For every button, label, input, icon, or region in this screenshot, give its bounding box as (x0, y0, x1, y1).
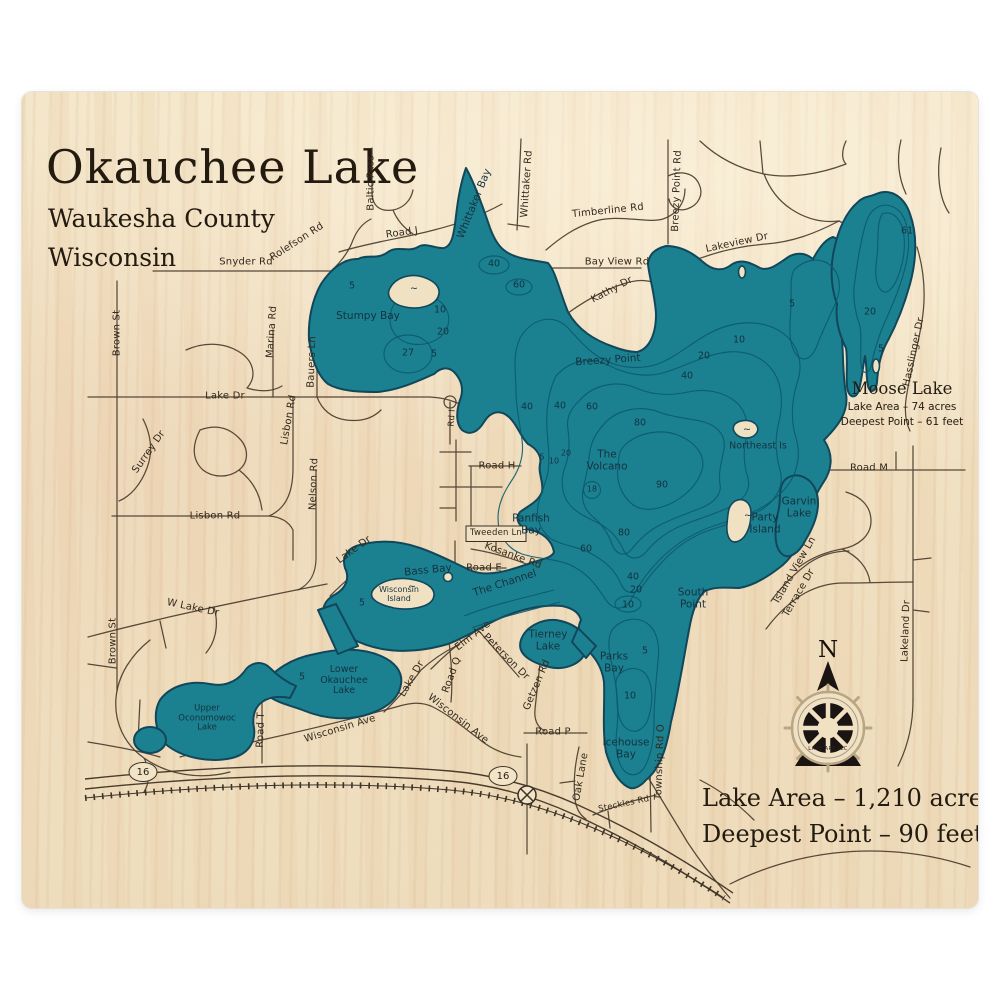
wood-map-board: Okauchee Lake Waukesha County Wisconsin … (22, 92, 978, 908)
deepest-point-label: Deepest Point – 90 feet (702, 816, 978, 852)
upper-oconomowoc-shape (156, 663, 296, 760)
moose-lake-area: Lake Area – 74 acres (813, 401, 978, 413)
map-canvas: Okauchee Lake Waukesha County Wisconsin … (22, 92, 978, 908)
wisconsin-island (371, 578, 434, 609)
railroad-crossing-icon (518, 786, 536, 804)
map-title: Okauchee Lake (46, 140, 419, 194)
moose-lake-title: Moose Lake (813, 379, 978, 398)
northeast-island (733, 420, 757, 438)
lakeview-islet (739, 266, 746, 278)
upper-oconomowoc-west-tip (134, 727, 166, 753)
moose-lake-info: Moose Lake Lake Area – 74 acres Deepest … (813, 379, 978, 428)
title-block: Okauchee Lake Waukesha County Wisconsin (46, 140, 419, 272)
compass-north-label: N (818, 637, 838, 663)
ship-wheel-logo-icon (785, 685, 871, 771)
moose-lake-islet (873, 359, 880, 373)
stumpy-bay-island (389, 275, 440, 308)
garvin-lake-shape (776, 475, 819, 556)
bass-bay-islet (444, 573, 453, 582)
moose-lake-depth: Deepest Point – 61 feet (813, 416, 978, 428)
map-county: Waukesha County (48, 204, 419, 233)
lake-area-label: Lake Area – 1,210 acres (702, 780, 978, 816)
lake-stats: Lake Area – 1,210 acres Deepest Point – … (702, 780, 978, 852)
lake-art-logo-text: LAKE ART LLC (808, 746, 847, 752)
tweeden-ln-box (466, 526, 526, 542)
map-state: Wisconsin (48, 243, 419, 272)
